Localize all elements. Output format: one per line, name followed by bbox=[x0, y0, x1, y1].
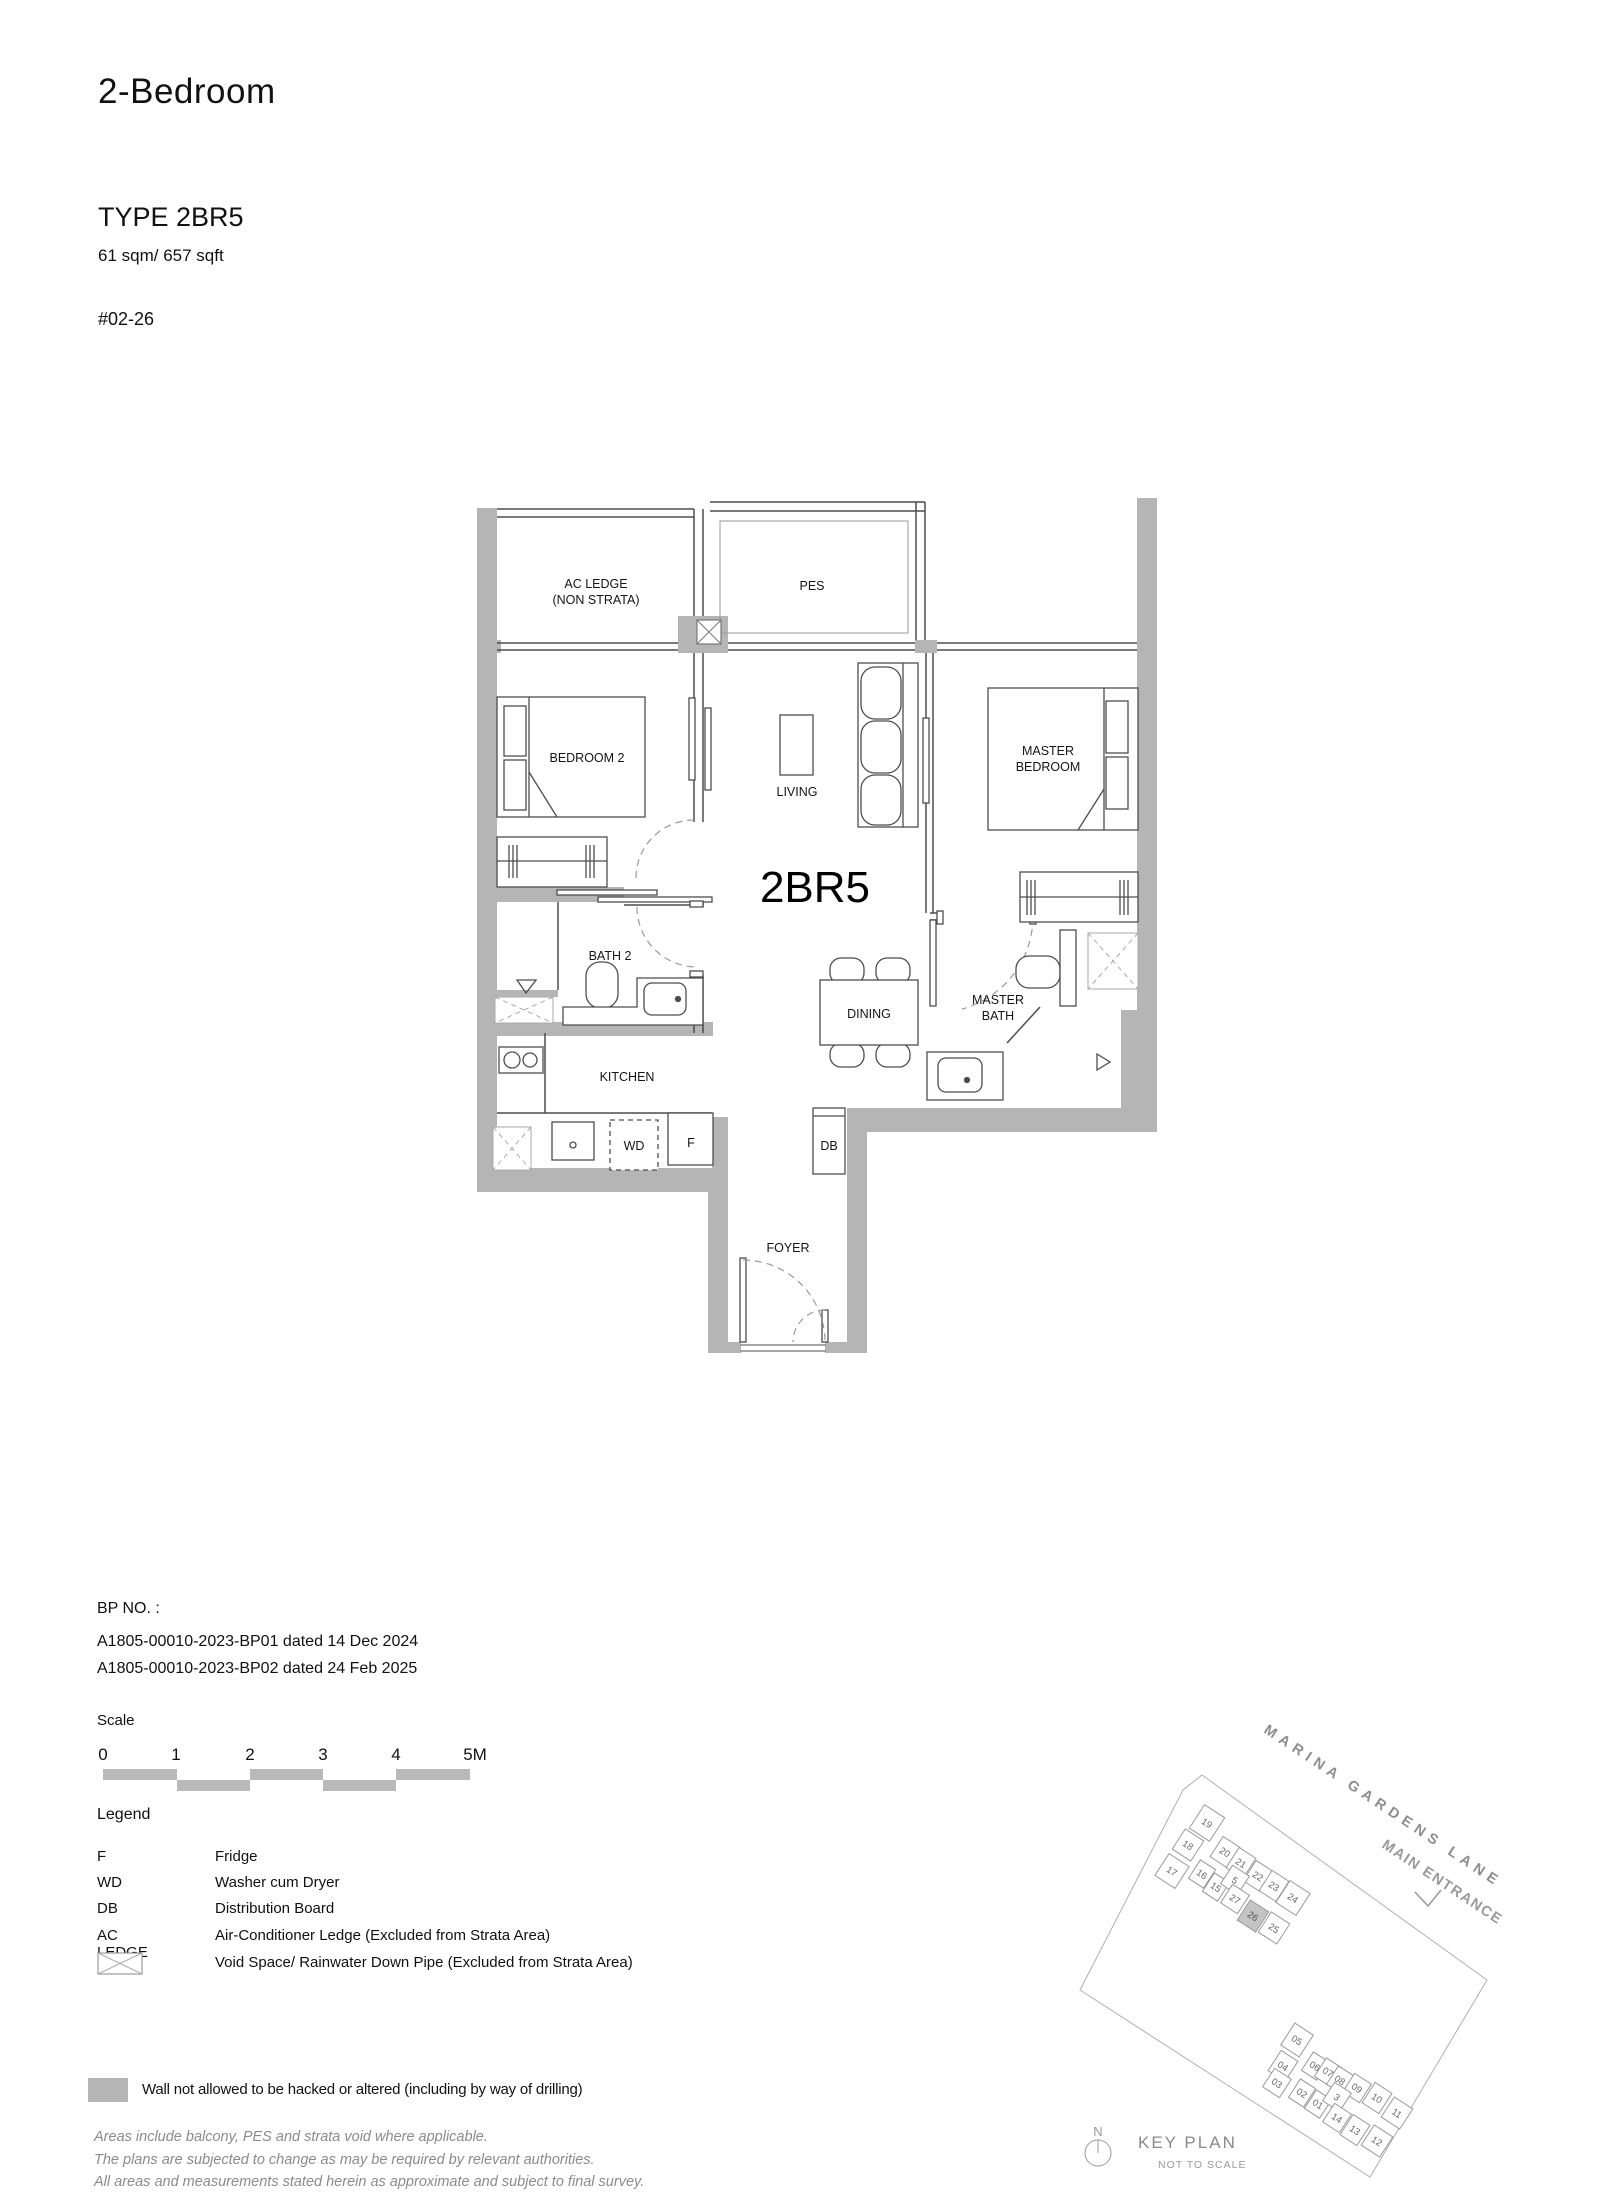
plan-type-label: 2BR5 bbox=[760, 863, 870, 912]
dining-chair bbox=[830, 1043, 864, 1067]
bedroom2-window bbox=[497, 643, 678, 650]
bedroom2-sliding-door bbox=[689, 698, 695, 780]
scale-segment bbox=[250, 1769, 323, 1780]
room-label-dining: DINING bbox=[847, 1007, 891, 1021]
wall-kitchen-right bbox=[712, 1117, 728, 1192]
scale-segment bbox=[396, 1769, 470, 1780]
scale-tick: 2 bbox=[245, 1745, 254, 1765]
void-space-icon bbox=[697, 620, 721, 644]
dining-chair bbox=[876, 1043, 910, 1067]
wall-foyer-bottom-left bbox=[708, 1342, 741, 1353]
unit-number: #02-26 bbox=[98, 309, 154, 330]
pes-floor-edge bbox=[720, 521, 908, 633]
legend-heading: Legend bbox=[97, 1806, 150, 1824]
room-label-bedroom2: BEDROOM 2 bbox=[549, 751, 624, 765]
entrance-threshold bbox=[740, 1345, 826, 1351]
page-title: 2-Bedroom bbox=[98, 72, 276, 112]
kitchen-sink bbox=[552, 1122, 594, 1160]
label-wd: WD bbox=[624, 1139, 645, 1153]
legend-term: F bbox=[97, 1848, 106, 1865]
label-db: DB bbox=[820, 1139, 837, 1153]
faucet bbox=[676, 997, 681, 1002]
bp-block: BP NO. : A1805-00010-2023-BP01 dated 14 … bbox=[97, 1595, 418, 1682]
entrance-door-swing bbox=[743, 1260, 825, 1342]
disclaimer: Areas include balcony, PES and strata vo… bbox=[94, 2126, 644, 2194]
room-label-master-bath: MASTER bbox=[972, 993, 1024, 1007]
bedroom2-door-swing bbox=[636, 820, 694, 878]
sofa-cushion bbox=[861, 721, 901, 773]
bp-line: A1805-00010-2023-BP02 dated 24 Feb 2025 bbox=[97, 1655, 418, 1682]
wall-mid-block bbox=[915, 640, 937, 653]
legend: F Fridge WD Washer cum Dryer DB Distribu… bbox=[97, 1848, 657, 1988]
wardrobe-sliding-track bbox=[557, 890, 657, 895]
wall-shower-curb bbox=[493, 990, 558, 997]
master-sliding-door bbox=[923, 718, 929, 803]
legend-desc: Fridge bbox=[215, 1848, 258, 1865]
wall-masterbath-bottom bbox=[847, 1108, 1143, 1132]
toilet bbox=[586, 962, 618, 1008]
legend-term: DB bbox=[97, 1900, 118, 1917]
pillow bbox=[1106, 757, 1128, 809]
living-window bbox=[728, 643, 915, 650]
wall-right bbox=[1137, 498, 1157, 1012]
scale-segment bbox=[177, 1780, 250, 1791]
room-label-pes: PES bbox=[799, 579, 824, 593]
bedroom2-sliding-door bbox=[705, 708, 711, 790]
bp-heading: BP NO. : bbox=[97, 1595, 418, 1622]
sofa bbox=[858, 663, 918, 827]
faucet bbox=[965, 1078, 970, 1083]
masterbath-door-leaf bbox=[930, 920, 936, 1006]
scale-tick: 0 bbox=[98, 1745, 107, 1765]
entrance-door-leaf bbox=[740, 1258, 746, 1342]
scale-tick: 5M bbox=[463, 1745, 487, 1765]
basin bbox=[938, 1058, 982, 1092]
keyplan-units: 19 18 17 20 21 22 23 24 16 15 5 27 26 25… bbox=[1155, 1805, 1413, 2157]
room-label-master-bedroom-2: BEDROOM bbox=[1016, 760, 1081, 774]
legend-desc: Void Space/ Rainwater Down Pipe (Exclude… bbox=[215, 1954, 633, 1971]
room-label-ac-ledge-2: (NON STRATA) bbox=[552, 593, 639, 607]
pes-railing bbox=[710, 502, 925, 640]
wall-color-swatch bbox=[88, 2078, 128, 2102]
acledge-top-wall bbox=[497, 509, 694, 517]
scale-segment bbox=[323, 1780, 396, 1791]
keyplan-title: KEY PLAN bbox=[1138, 2133, 1237, 2152]
unit-area: 61 sqm/ 657 sqft bbox=[98, 246, 224, 266]
pillow bbox=[504, 706, 526, 756]
disclaimer-line: All areas and measurements stated herein… bbox=[94, 2171, 644, 2194]
key-plan: MARINA GARDENS LANE MAIN ENTRANCE 19 18 … bbox=[1050, 1680, 1600, 2205]
wall-note: Wall not allowed to be hacked or altered… bbox=[142, 2081, 582, 2098]
sofa-cushion bbox=[861, 667, 901, 719]
wardrobe-bedroom2 bbox=[497, 837, 607, 887]
disclaimer-line: Areas include balcony, PES and strata vo… bbox=[94, 2126, 644, 2149]
shower-head bbox=[1097, 1054, 1110, 1070]
north-label: N bbox=[1093, 2124, 1102, 2139]
floor-plan: AC LEDGE (NON STRATA) PES BEDROOM 2 LIVI… bbox=[340, 495, 1170, 1365]
toilet-cistern bbox=[1060, 930, 1076, 1006]
bath2-door-frame bbox=[690, 971, 703, 977]
toilet bbox=[1016, 956, 1060, 988]
legend-term: WD bbox=[97, 1874, 122, 1891]
legend-desc: Distribution Board bbox=[215, 1900, 334, 1917]
north-arrow-icon: N bbox=[1085, 2124, 1111, 2166]
bath2-door-swing bbox=[637, 907, 697, 967]
scale-tick: 3 bbox=[318, 1745, 327, 1765]
keyplan-subtitle: NOT TO SCALE bbox=[1158, 2159, 1246, 2171]
scale-tick: 4 bbox=[391, 1745, 400, 1765]
wall-left bbox=[477, 508, 497, 1192]
label-fridge: F bbox=[687, 1136, 695, 1150]
bath2-door-frame bbox=[690, 901, 703, 907]
masterbath-fixtures bbox=[927, 930, 1110, 1100]
street-label: MARINA GARDENS LANE bbox=[1261, 1722, 1505, 1891]
wall-right-step bbox=[1121, 1010, 1157, 1132]
entrance-arrow-icon bbox=[1415, 1890, 1441, 1906]
bed-master bbox=[988, 688, 1138, 830]
room-label-ac-ledge: AC LEDGE bbox=[564, 577, 627, 591]
void-space-icon bbox=[495, 997, 553, 1023]
room-label-bath2: BATH 2 bbox=[589, 949, 632, 963]
pillow bbox=[1106, 701, 1128, 753]
pillow bbox=[504, 760, 526, 810]
room-label-master-bedroom: MASTER bbox=[1022, 744, 1074, 758]
scale-tick: 1 bbox=[171, 1745, 180, 1765]
sofa-cushion bbox=[861, 775, 901, 825]
disclaimer-line: The plans are subjected to change as may… bbox=[94, 2149, 644, 2172]
masterbath-door-frame bbox=[937, 911, 943, 924]
unit-type-label: TYPE 2BR5 bbox=[98, 202, 244, 233]
master-window bbox=[937, 643, 1137, 650]
void-space-icon bbox=[97, 1952, 143, 1975]
wall-kitchen-bottom bbox=[477, 1168, 728, 1192]
furniture bbox=[497, 663, 1138, 1174]
bp-line: A1805-00010-2023-BP01 dated 14 Dec 2024 bbox=[97, 1628, 418, 1655]
void-space-icon bbox=[493, 1127, 531, 1170]
legend-desc: Washer cum Dryer bbox=[215, 1874, 339, 1891]
wall-foyer-right bbox=[847, 1108, 867, 1353]
thin-walls bbox=[497, 502, 1137, 1351]
wall-mid-left-stub bbox=[477, 640, 501, 653]
scale-heading: Scale bbox=[97, 1712, 135, 1729]
floorplan-page: 2-Bedroom TYPE 2BR5 61 sqm/ 657 sqft #02… bbox=[0, 0, 1600, 2205]
structural-walls bbox=[477, 498, 1157, 1353]
legend-desc: Air-Conditioner Ledge (Excluded from Str… bbox=[215, 1927, 550, 1944]
void-space-icon bbox=[1088, 933, 1138, 989]
coffee-table bbox=[780, 715, 813, 775]
room-label-living: LIVING bbox=[777, 785, 818, 799]
wardrobe-master bbox=[1020, 872, 1138, 922]
wall-foyer-left bbox=[708, 1192, 728, 1353]
room-label-kitchen: KITCHEN bbox=[600, 1070, 655, 1084]
scale-segment bbox=[103, 1769, 177, 1780]
room-label-master-bath-2: BATH bbox=[982, 1009, 1014, 1023]
room-label-foyer: FOYER bbox=[766, 1241, 809, 1255]
